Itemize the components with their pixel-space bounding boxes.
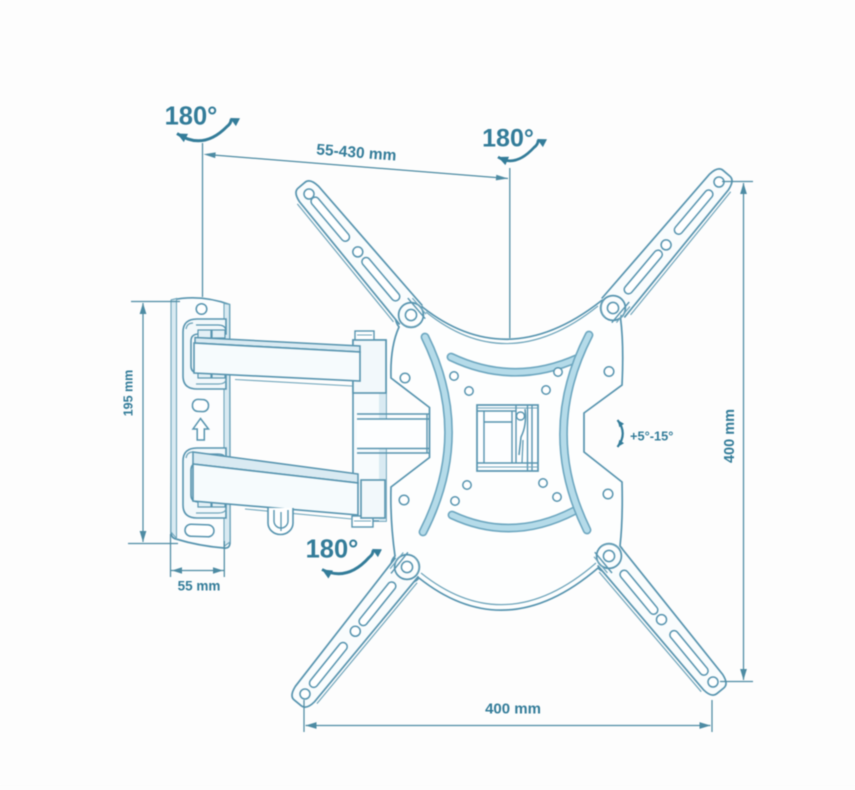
svg-text:400 mm: 400 mm	[722, 409, 738, 463]
svg-text:+5°-15°: +5°-15°	[630, 429, 673, 444]
svg-text:180°: 180°	[306, 536, 359, 564]
svg-text:180°: 180°	[165, 103, 218, 131]
svg-text:180°: 180°	[482, 125, 534, 153]
svg-text:195 mm: 195 mm	[122, 370, 136, 417]
svg-text:55 mm: 55 mm	[178, 579, 221, 594]
svg-text:400 mm: 400 mm	[485, 701, 541, 718]
